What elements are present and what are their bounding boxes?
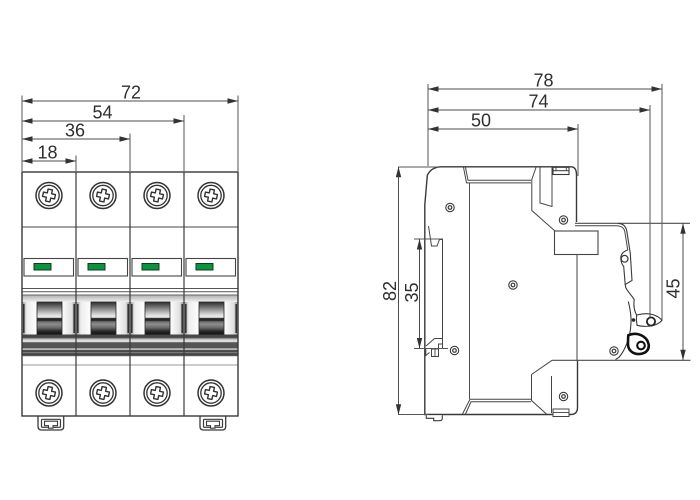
svg-text:45: 45 [664, 278, 684, 298]
svg-text:50: 50 [471, 110, 491, 130]
svg-text:82: 82 [380, 281, 400, 301]
svg-text:36: 36 [65, 120, 85, 140]
svg-text:18: 18 [37, 142, 57, 162]
svg-text:35: 35 [402, 282, 422, 302]
svg-text:72: 72 [121, 82, 141, 102]
svg-text:54: 54 [92, 102, 112, 122]
svg-text:78: 78 [533, 70, 553, 90]
svg-text:74: 74 [528, 91, 548, 111]
